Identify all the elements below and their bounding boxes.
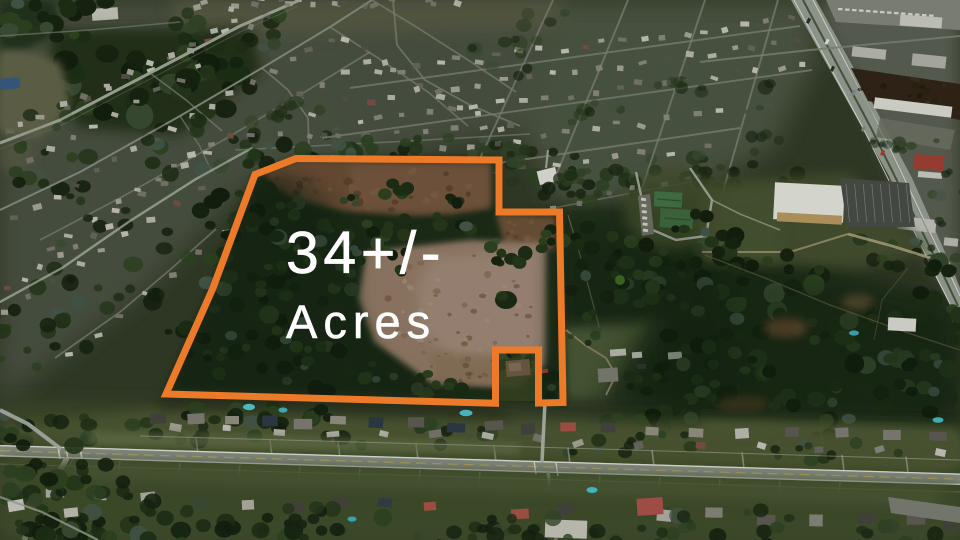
svg-text:34+/-: 34+/- [286,220,445,286]
svg-text:Acres: Acres [286,295,436,348]
